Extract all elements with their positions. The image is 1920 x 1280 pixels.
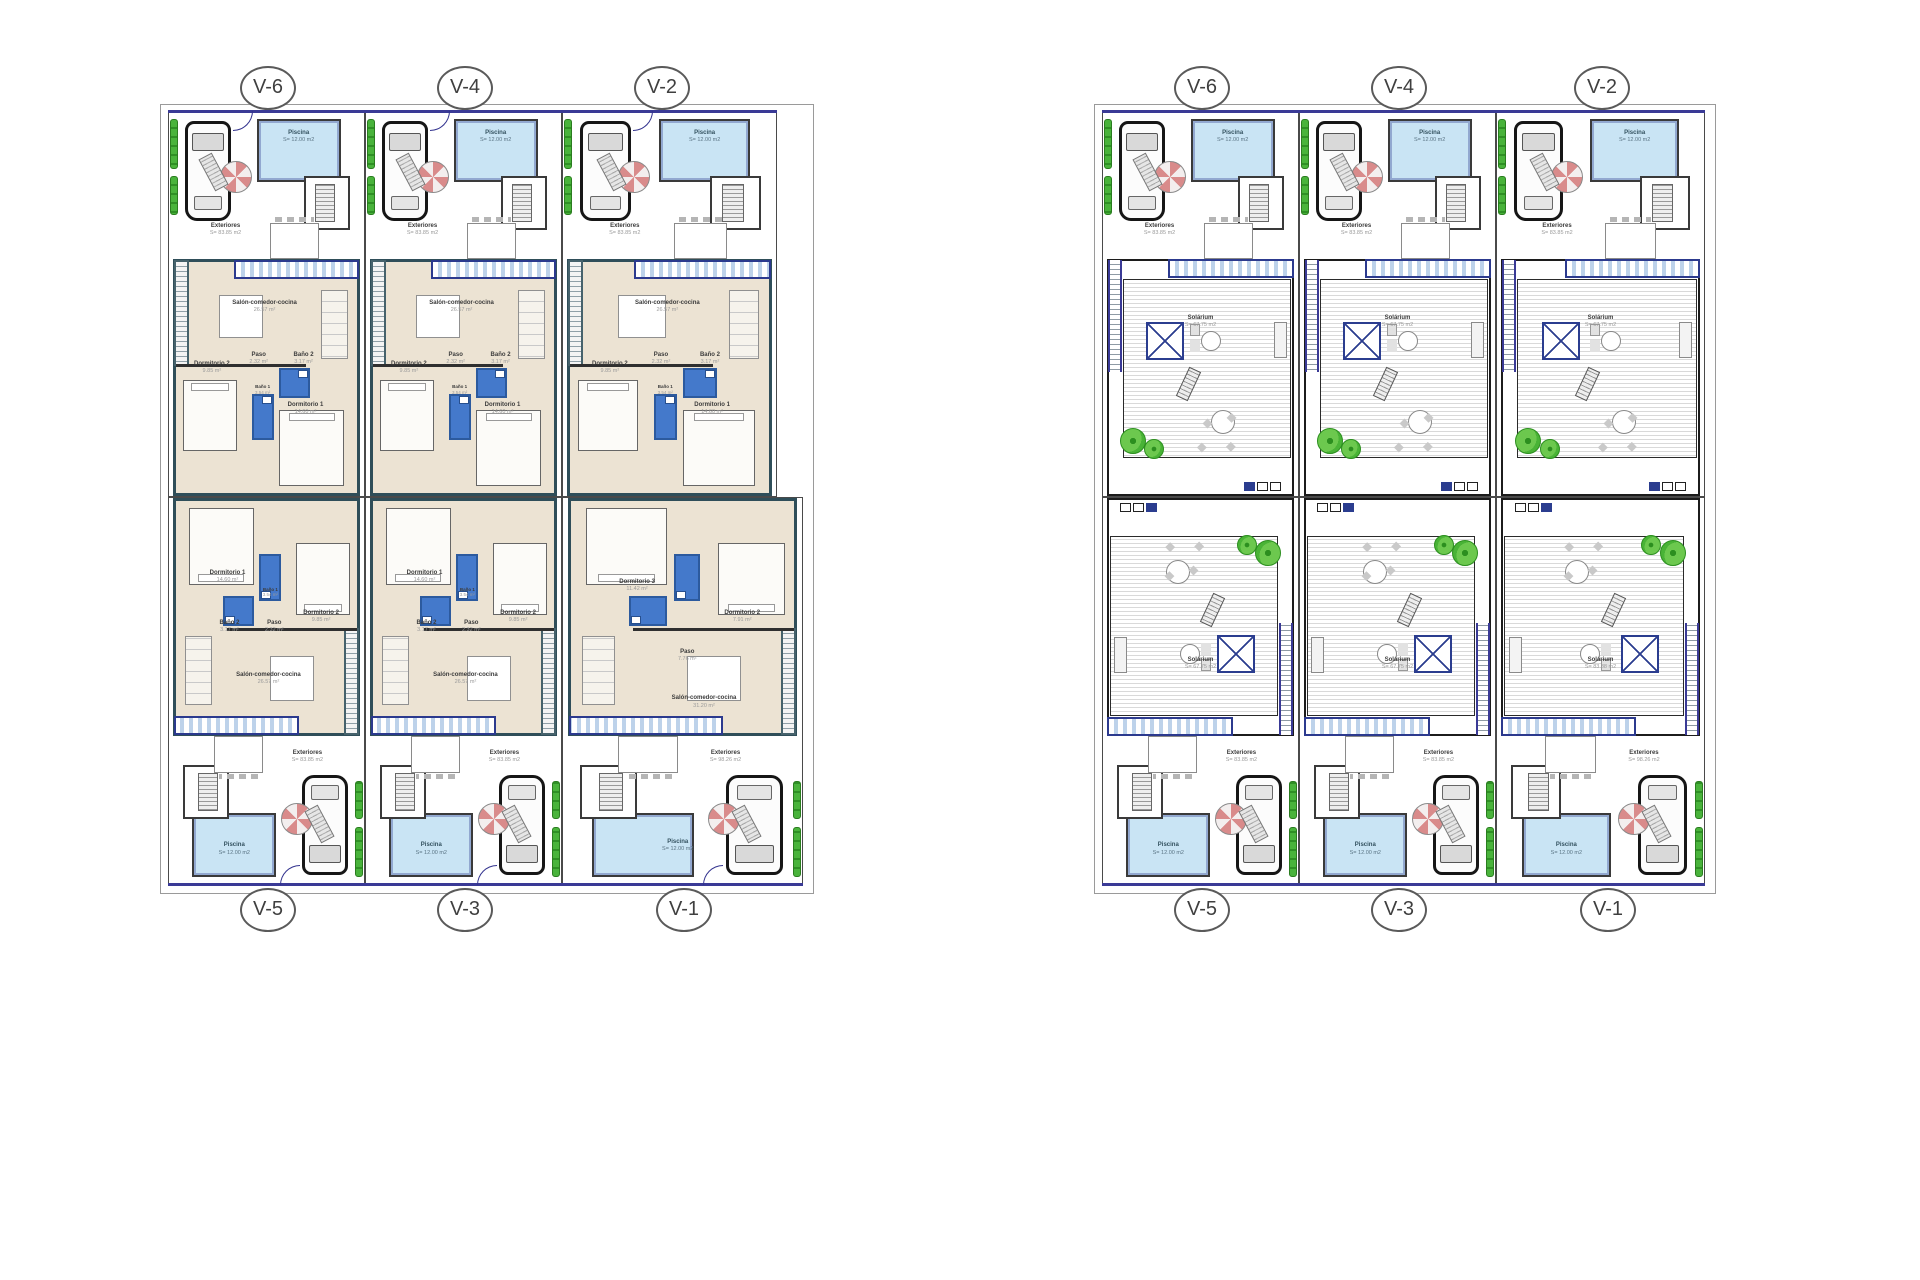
room-name: Piscina — [259, 130, 339, 137]
label-exteriores: ExterioresS= 83.85 m2 — [1204, 750, 1278, 764]
unit-tag-v4-roof: V-4 — [1371, 66, 1427, 110]
unit-tag-v3-ground: V-3 — [437, 888, 493, 932]
unit-tag-v3-roof: V-3 — [1371, 888, 1427, 932]
room-area: 2.32 m² — [436, 359, 475, 366]
room-area: S= 67.75 m2 — [1150, 322, 1251, 329]
label-exteriores: ExterioresS= 83.85 m2 — [189, 223, 263, 237]
label-paso: Paso2.32 m² — [436, 352, 475, 366]
label-dormitorio2: Dormitorio 29.85 m² — [290, 610, 352, 624]
room-area: 14.60 m² — [670, 409, 755, 416]
room-area: 11.42 m² — [601, 586, 673, 593]
label-exteriores: ExterioresS= 83.85 m2 — [1518, 223, 1597, 237]
room-name: Paso — [436, 352, 475, 359]
room-name: Exteriores — [270, 750, 344, 757]
label-bano2: Baño 23.17 m² — [684, 352, 735, 366]
room-area: 26.57 m² — [208, 307, 321, 314]
room-name: Exteriores — [1123, 223, 1197, 230]
label-paso: Paso2.32 m² — [255, 620, 294, 634]
label-solarium: SoláriumS= 67.75 m2 — [1547, 315, 1655, 329]
label-salon: Salón-comedor-cocina26.57 m² — [606, 300, 730, 314]
room-name: Dormitorio 2 — [487, 610, 549, 617]
label-salon: Salón-comedor-cocina26.57 m² — [409, 672, 522, 686]
label-piscina: PiscinaS= 12.00 m2 — [1193, 130, 1273, 144]
room-area: S= 12.00 m2 — [194, 850, 274, 857]
plot-v3-ground-floor: ExterioresS= 83.85 m2 PiscinaS= 12.00 m2… — [365, 497, 562, 886]
room-area: S= 83.85 m2 — [1123, 230, 1197, 237]
room-name: Piscina — [1193, 130, 1273, 137]
room-area: S= 83.85 m2 — [1518, 230, 1597, 237]
label-exteriores: ExterioresS= 83.85 m2 — [467, 750, 541, 764]
room-area: 2.32 m² — [452, 627, 491, 634]
room-labels: ExterioresS= 83.85 m2 PiscinaS= 12.00 m2… — [169, 111, 364, 496]
room-area: 14.60 m² — [267, 409, 345, 416]
room-area: S= 12.00 m2 — [1592, 137, 1677, 144]
label-dormitorio3: Dormitorio 311.42 m² — [601, 579, 673, 593]
label-exteriores: ExterioresS= 83.85 m2 — [1320, 223, 1394, 237]
label-piscina: PiscinaS= 12.00 m2 — [391, 842, 471, 856]
room-labels: ExterioresS= 83.85 m2 PiscinaS= 12.00 m2… — [1300, 498, 1495, 885]
room-area: S= 67.75 m2 — [1347, 322, 1448, 329]
label-bano2: Baño 23.17 m² — [280, 352, 327, 366]
room-labels: ExterioresS= 83.85 m2 PiscinaS= 12.00 m2… — [366, 111, 561, 496]
room-name: Piscina — [1524, 842, 1609, 849]
room-name: Solárium — [1547, 315, 1655, 322]
room-labels: ExterioresS= 83.85 m2 PiscinaS= 12.00 m2… — [1103, 111, 1298, 496]
label-paso: Paso2.32 m² — [239, 352, 278, 366]
room-name: Dormitorio 1 — [189, 570, 267, 577]
label-piscina: PiscinaS= 12.00 m2 — [456, 130, 536, 144]
room-area: 7.76 m² — [663, 656, 711, 663]
room-name: Salón-comedor-cocina — [409, 672, 522, 679]
label-piscina: PiscinaS= 12.00 m2 — [1128, 842, 1208, 856]
room-name: Paso — [452, 620, 491, 627]
room-name: Exteriores — [1320, 223, 1394, 230]
room-area: 26.57 m² — [405, 307, 518, 314]
unit-tag-v1-roof: V-1 — [1580, 888, 1636, 932]
label-salon: Salón-comedor-cocina26.57 m² — [405, 300, 518, 314]
label-exteriores: ExterioresS= 83.85 m2 — [1123, 223, 1197, 237]
room-area: S= 67.75 m2 — [1547, 322, 1655, 329]
room-area: 2.32 m² — [239, 359, 278, 366]
label-solarium: SoláriumS= 67.75 m2 — [1150, 315, 1251, 329]
label-bano2: Baño 23.17 m² — [403, 620, 450, 634]
label-dormitorio2: Dormitorio 29.85 m² — [378, 361, 440, 375]
label-piscina: PiscinaS= 12.00 m2 — [661, 130, 748, 144]
room-area: 3.17 m² — [684, 359, 735, 366]
room-name: Solárium — [1150, 657, 1251, 664]
room-area: 3.54 m² — [454, 592, 481, 597]
room-area: S= 67.75 m2 — [1150, 664, 1251, 671]
room-name: Dormitorio 2 — [576, 361, 644, 368]
room-area: 9.85 m² — [487, 617, 549, 624]
room-labels: Dormitorio 311.42 m² Dormitorio 27.91 m²… — [563, 498, 802, 885]
label-paso: Paso2.32 m² — [640, 352, 683, 366]
room-area: S= 83.85 m2 — [584, 230, 665, 237]
room-area: 2.32 m² — [255, 627, 294, 634]
label-bano1: Baño 13.54 m² — [446, 384, 473, 395]
room-labels: ExterioresS= 83.85 m2 PiscinaS= 12.00 m2… — [169, 498, 364, 885]
room-area: S= 83.88 m2 — [1547, 664, 1655, 671]
label-solarium: SoláriumS= 67.75 m2 — [1150, 657, 1251, 671]
room-name: Salón-comedor-cocina — [208, 300, 321, 307]
label-paso: Paso7.76 m² — [663, 649, 711, 663]
room-area: 9.85 m² — [378, 368, 440, 375]
room-name: Exteriores — [1204, 750, 1278, 757]
label-exteriores: ExterioresS= 83.85 m2 — [270, 750, 344, 764]
plot-v6-roof: ExterioresS= 83.85 m2 PiscinaS= 12.00 m2… — [1102, 110, 1299, 497]
label-salon: Salón-comedor-cocina31.20 m² — [644, 695, 764, 709]
room-name: Baño 2 — [280, 352, 327, 359]
room-name: Piscina — [194, 842, 274, 849]
label-piscina: PiscinaS= 12.00 m2 — [194, 842, 274, 856]
room-name: Solárium — [1347, 315, 1448, 322]
room-area: 3.17 m² — [403, 627, 450, 634]
room-area: 31.20 m² — [644, 703, 764, 710]
room-name: Salón-comedor-cocina — [212, 672, 325, 679]
plot-v2-roof: ExterioresS= 83.85 m2 PiscinaS= 12.00 m2… — [1496, 110, 1705, 497]
label-dormitorio1: Dormitorio 114.60 m² — [386, 570, 464, 584]
room-name: Dormitorio 2 — [706, 610, 778, 617]
plot-v4-ground-floor: ExterioresS= 83.85 m2 PiscinaS= 12.00 m2… — [365, 110, 562, 497]
label-exteriores: ExterioresS= 83.85 m2 — [386, 223, 460, 237]
room-area: S= 12.00 m2 — [1128, 850, 1208, 857]
room-labels: ExterioresS= 98.26 m2 PiscinaS= 12.00 m2… — [1497, 498, 1704, 885]
room-name: Dormitorio 2 — [181, 361, 243, 368]
label-salon: Salón-comedor-cocina26.57 m² — [212, 672, 325, 686]
label-bano1: Baño 13.54 m² — [257, 587, 284, 598]
room-name: Piscina — [661, 130, 748, 137]
room-name: Dormitorio 1 — [267, 402, 345, 409]
room-name: Dormitorio 1 — [670, 402, 755, 409]
room-area: 3.54 m² — [249, 390, 276, 395]
floorplan-canvas: V-6 V-4 V-2 V-5 V-3 V-1 — [0, 0, 1920, 1280]
plot-v5-roof: ExterioresS= 83.85 m2 PiscinaS= 12.00 m2… — [1102, 497, 1299, 886]
room-area: S= 83.85 m2 — [270, 757, 344, 764]
room-name: Piscina — [1592, 130, 1677, 137]
room-area: 14.60 m² — [464, 409, 542, 416]
room-name: Exteriores — [467, 750, 541, 757]
room-area: 3.54 m² — [650, 390, 680, 395]
label-bano2: Baño 23.17 m² — [477, 352, 524, 366]
unit-tag-v2-ground: V-2 — [634, 66, 690, 110]
room-name: Dormitorio 3 — [601, 579, 673, 586]
label-exteriores: ExterioresS= 98.26 m2 — [1605, 750, 1684, 764]
label-dormitorio2: Dormitorio 27.91 m² — [706, 610, 778, 624]
label-solarium: SoláriumS= 67.75 m2 — [1347, 657, 1448, 671]
room-name: Baño 2 — [684, 352, 735, 359]
label-salon: Salón-comedor-cocina26.57 m² — [208, 300, 321, 314]
label-bano1: Baño 13.54 m² — [454, 587, 481, 598]
room-area: S= 12.00 m2 — [661, 137, 748, 144]
plot-v3-roof: ExterioresS= 83.85 m2 PiscinaS= 12.00 m2… — [1299, 497, 1496, 886]
unit-tag-v5-ground: V-5 — [240, 888, 296, 932]
label-solarium: SoláriumS= 67.75 m2 — [1347, 315, 1448, 329]
room-area: 7.91 m² — [706, 617, 778, 624]
label-piscina: PiscinaS= 12.00 m2 — [1390, 130, 1470, 144]
room-area: S= 83.85 m2 — [1320, 230, 1394, 237]
room-area: 9.85 m² — [290, 617, 352, 624]
plot-v6-ground-floor: ExterioresS= 83.85 m2 PiscinaS= 12.00 m2… — [168, 110, 365, 497]
room-area: S= 12.00 m2 — [1390, 137, 1470, 144]
room-name: Solárium — [1347, 657, 1448, 664]
unit-tag-v4-ground: V-4 — [437, 66, 493, 110]
label-dormitorio2: Dormitorio 29.85 m² — [576, 361, 644, 375]
room-name: Solárium — [1150, 315, 1251, 322]
room-name: Exteriores — [1518, 223, 1597, 230]
label-bano2: Baño 23.17 m² — [206, 620, 253, 634]
plot-v1-roof: ExterioresS= 98.26 m2 PiscinaS= 12.00 m2… — [1496, 497, 1705, 886]
room-name: Salón-comedor-cocina — [606, 300, 730, 307]
unit-tag-v6-ground: V-6 — [240, 66, 296, 110]
room-area: 3.17 m² — [280, 359, 327, 366]
room-name: Dormitorio 2 — [290, 610, 352, 617]
room-area: S= 12.00 m2 — [259, 137, 339, 144]
room-name: Exteriores — [584, 223, 665, 230]
room-area: 9.85 m² — [576, 368, 644, 375]
room-name: Piscina — [456, 130, 536, 137]
room-area: 26.57 m² — [212, 679, 325, 686]
room-area: 3.54 m² — [257, 592, 284, 597]
room-name: Dormitorio 1 — [464, 402, 542, 409]
room-area: S= 83.85 m2 — [1401, 757, 1475, 764]
room-name: Exteriores — [386, 223, 460, 230]
label-dormitorio2: Dormitorio 29.85 m² — [487, 610, 549, 624]
room-area: 9.85 m² — [181, 368, 243, 375]
room-name: Piscina — [391, 842, 471, 849]
room-name: Paso — [255, 620, 294, 627]
room-name: Baño 2 — [477, 352, 524, 359]
room-name: Exteriores — [678, 750, 774, 757]
plot-v2-ground-floor: ExterioresS= 83.85 m2 PiscinaS= 12.00 m2… — [562, 110, 777, 497]
room-area: 14.60 m² — [189, 577, 267, 584]
room-area: S= 83.85 m2 — [189, 230, 263, 237]
room-labels: ExterioresS= 83.85 m2 PiscinaS= 12.00 m2… — [1103, 498, 1298, 885]
label-piscina: PiscinaS= 12.00 m2 — [259, 130, 339, 144]
plot-v4-roof: ExterioresS= 83.85 m2 PiscinaS= 12.00 m2… — [1299, 110, 1496, 497]
label-paso: Paso2.32 m² — [452, 620, 491, 634]
room-area: S= 12.00 m2 — [1524, 850, 1609, 857]
room-area: 26.57 m² — [409, 679, 522, 686]
label-dormitorio2: Dormitorio 29.85 m² — [181, 361, 243, 375]
room-name: Salón-comedor-cocina — [405, 300, 518, 307]
room-name: Piscina — [625, 839, 730, 846]
label-dormitorio1: Dormitorio 114.60 m² — [464, 402, 542, 416]
room-name: Baño 2 — [403, 620, 450, 627]
room-area: S= 98.26 m2 — [1605, 757, 1684, 764]
room-area: 3.17 m² — [206, 627, 253, 634]
unit-tag-v6-roof: V-6 — [1174, 66, 1230, 110]
room-area: S= 12.00 m2 — [625, 846, 730, 853]
room-area: S= 83.85 m2 — [467, 757, 541, 764]
room-name: Dormitorio 2 — [378, 361, 440, 368]
room-area: S= 98.26 m2 — [678, 757, 774, 764]
room-name: Dormitorio 1 — [386, 570, 464, 577]
label-piscina: PiscinaS= 12.00 m2 — [625, 839, 730, 853]
room-name: Piscina — [1325, 842, 1405, 849]
room-name: Paso — [663, 649, 711, 656]
unit-tag-v2-roof: V-2 — [1574, 66, 1630, 110]
unit-tag-v5-roof: V-5 — [1174, 888, 1230, 932]
room-name: Exteriores — [1401, 750, 1475, 757]
label-dormitorio1: Dormitorio 114.60 m² — [670, 402, 755, 416]
room-area: S= 67.75 m2 — [1347, 664, 1448, 671]
label-piscina: PiscinaS= 12.00 m2 — [1524, 842, 1609, 856]
room-name: Paso — [239, 352, 278, 359]
room-area: 14.60 m² — [386, 577, 464, 584]
room-name: Piscina — [1390, 130, 1470, 137]
unit-tag-v1-ground: V-1 — [656, 888, 712, 932]
room-name: Salón-comedor-cocina — [644, 695, 764, 702]
room-area: S= 12.00 m2 — [1325, 850, 1405, 857]
room-area: S= 12.00 m2 — [456, 137, 536, 144]
room-name: Exteriores — [1605, 750, 1684, 757]
label-piscina: PiscinaS= 12.00 m2 — [1592, 130, 1677, 144]
label-bano1: Baño 13.54 m² — [650, 384, 680, 395]
room-area: 26.57 m² — [606, 307, 730, 314]
room-area: S= 83.85 m2 — [1204, 757, 1278, 764]
room-name: Baño 2 — [206, 620, 253, 627]
room-name: Paso — [640, 352, 683, 359]
room-labels: ExterioresS= 83.85 m2 PiscinaS= 12.00 m2… — [1300, 111, 1495, 496]
room-area: S= 12.00 m2 — [391, 850, 471, 857]
label-bano1: Baño 13.54 m² — [249, 384, 276, 395]
room-labels: ExterioresS= 83.85 m2 PiscinaS= 12.00 m2… — [366, 498, 561, 885]
room-area: S= 12.00 m2 — [1193, 137, 1273, 144]
label-exteriores: ExterioresS= 98.26 m2 — [678, 750, 774, 764]
room-area: S= 83.85 m2 — [386, 230, 460, 237]
label-exteriores: ExterioresS= 83.85 m2 — [584, 223, 665, 237]
plot-v1-ground-floor: Dormitorio 311.42 m² Dormitorio 27.91 m²… — [562, 497, 803, 886]
room-area: 2.32 m² — [640, 359, 683, 366]
label-solarium: SoláriumS= 83.88 m2 — [1547, 657, 1655, 671]
room-name: Piscina — [1128, 842, 1208, 849]
label-dormitorio1: Dormitorio 114.60 m² — [189, 570, 267, 584]
plot-v5-ground-floor: ExterioresS= 83.85 m2 PiscinaS= 12.00 m2… — [168, 497, 365, 886]
room-area: 3.17 m² — [477, 359, 524, 366]
room-labels: ExterioresS= 83.85 m2 PiscinaS= 12.00 m2… — [1497, 111, 1704, 496]
label-exteriores: ExterioresS= 83.85 m2 — [1401, 750, 1475, 764]
room-name: Solárium — [1547, 657, 1655, 664]
label-piscina: PiscinaS= 12.00 m2 — [1325, 842, 1405, 856]
room-labels: ExterioresS= 83.85 m2 PiscinaS= 12.00 m2… — [563, 111, 776, 496]
room-name: Exteriores — [189, 223, 263, 230]
room-area: 3.54 m² — [446, 390, 473, 395]
label-dormitorio1: Dormitorio 114.60 m² — [267, 402, 345, 416]
